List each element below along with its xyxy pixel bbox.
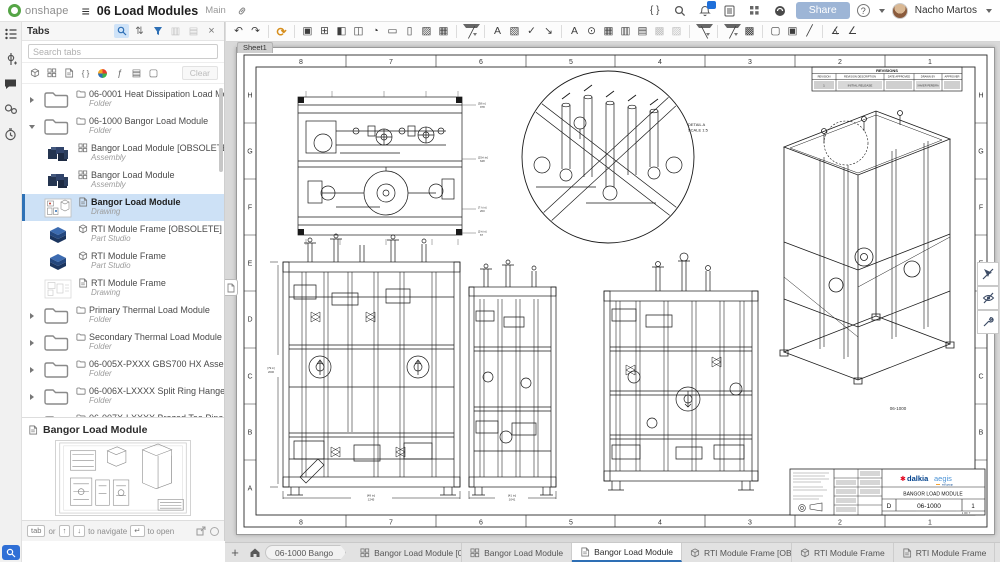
new-tab-button[interactable]: + [225, 543, 245, 562]
item-sublabel: Part Studio [91, 234, 222, 244]
svg-text:REVISIONS: REVISIONS [876, 68, 898, 73]
notifications-bell-icon[interactable] [696, 3, 714, 19]
toolbar-divider [456, 25, 457, 38]
item-label: 06-0001 Heat Dissipation Load Mod... [89, 89, 224, 99]
item-type-icon [76, 305, 86, 315]
item-label: RTI Module Frame [OBSOLETE] [91, 224, 222, 234]
item-thumbnail [41, 305, 71, 326]
item-label: Primary Thermal Load Module [89, 305, 210, 315]
item-label: Bangor Load Module [91, 197, 181, 207]
item-meta: 06-006X-LXXXX Split Ring Hanger A... Fol… [76, 386, 224, 406]
hide-all-icon[interactable] [977, 286, 999, 310]
svg-text:B: B [979, 430, 984, 437]
folder-breadcrumb[interactable]: 06-1000 Bango [265, 545, 346, 560]
item-thumbnail [41, 116, 71, 137]
item-thumbnail [43, 224, 73, 245]
tree-item[interactable]: Bangor Load Module Drawing [22, 194, 224, 221]
item-label: 06-007X-LXXXX Brazed Tee Pipe As... [89, 413, 224, 417]
item-type-icon [78, 143, 88, 153]
release-tasks-icon[interactable] [721, 3, 739, 19]
share-button[interactable]: Share [796, 2, 850, 19]
tree-item[interactable]: RTI Module Frame Drawing [22, 275, 224, 302]
item-sublabel: Folder [89, 315, 210, 325]
svg-text:APPROVER: APPROVER [945, 75, 960, 79]
svg-text:200: 200 [480, 209, 485, 213]
drawing-toolbar: ↶ ↷ ⟳ ▣ ⊞ ◧ ◫ ◔ ▭ ▯ ▨ ▦ ╱ [225, 22, 1000, 42]
svg-text:6: 6 [479, 59, 483, 66]
drawing-number: 06-1000 [917, 503, 941, 510]
item-sublabel: Drawing [91, 288, 166, 298]
sheet-count: 1 OF 7 [962, 511, 971, 515]
enter-key-hint: ↵ [130, 525, 144, 537]
svg-text:1041: 1041 [509, 498, 516, 502]
item-type-icon [76, 413, 86, 417]
item-sublabel: Assembly [91, 153, 224, 163]
edit-appearance-icon[interactable] [977, 310, 999, 334]
break-view-icon[interactable]: ▯ [401, 24, 418, 39]
user-avatar[interactable] [892, 3, 908, 19]
svg-text:G: G [978, 149, 983, 156]
hide-entity-icon[interactable] [977, 262, 999, 286]
svg-text:1245: 1245 [368, 498, 375, 502]
close-panel-icon[interactable]: × [204, 24, 219, 38]
document-title: 06 Load Modules [97, 4, 198, 18]
item-label: Bangor Load Module [91, 170, 175, 180]
home-tab-icon[interactable] [245, 543, 265, 562]
tabs-tree: 06-0001 Heat Dissipation Load Mod... Fol… [22, 84, 224, 417]
toolbar-divider [689, 25, 690, 38]
redo-icon[interactable]: ↷ [247, 24, 264, 39]
onshape-logo-icon [8, 4, 21, 17]
item-meta: Bangor Load Module Drawing [78, 197, 181, 217]
item-thumbnail [41, 386, 71, 407]
item-meta: RTI Module Frame [OBSOLETE] Part Studio [78, 224, 222, 244]
sort-icon[interactable]: ⇅ [132, 24, 147, 38]
item-type-icon [78, 197, 88, 207]
versions-icon[interactable] [3, 101, 19, 117]
svg-text:3: 3 [748, 59, 752, 66]
panel-title: Tabs [27, 26, 111, 37]
svg-text:REVISION DESCRIPTION: REVISION DESCRIPTION [844, 75, 876, 79]
item-sublabel: Folder [89, 396, 224, 406]
tree-item[interactable]: 06-0001 Heat Dissipation Load Mod... Fol… [22, 86, 224, 113]
section-view-icon[interactable]: ◫ [350, 24, 367, 39]
sheet-tab[interactable]: Sheet1 [237, 42, 273, 53]
down-key-hint: ↓ [73, 525, 85, 537]
measure-distance-icon[interactable]: ∡ [827, 24, 844, 39]
note-icon[interactable]: A [489, 24, 506, 39]
tree-item[interactable]: 06-005X-PXXX GBS700 HX Assembly Folder [22, 356, 224, 383]
callout-icon[interactable]: ↘ [540, 24, 557, 39]
undo-icon[interactable]: ↶ [230, 24, 247, 39]
tree-item[interactable]: Bangor Load Module [OBSOLETE] Assembly [22, 140, 224, 167]
item-sublabel: Folder [89, 342, 222, 352]
table-icon[interactable]: ▦ [600, 24, 617, 39]
pdf-filter-icon[interactable]: ▤ [130, 67, 143, 80]
svg-text:✱: ✱ [900, 475, 906, 483]
toolbar-divider [561, 25, 562, 38]
tree-item[interactable]: 06-007X-LXXXX Brazed Tee Pipe As... Fold… [22, 410, 224, 417]
item-type-icon [76, 332, 86, 342]
main-menu-icon[interactable]: ≡ [82, 4, 90, 18]
svg-text:648: 648 [480, 159, 485, 163]
insert-view-icon[interactable]: ▣ [299, 24, 316, 39]
item-label: RTI Module Frame [91, 278, 166, 288]
drawing-sheet[interactable]: 87 65 43 21 87 65 43 21 HG FE DC BA HG F… [236, 47, 995, 535]
svg-text:XAVIER PEREIRA: XAVIER PEREIRA [917, 84, 939, 88]
preview-title: Bangor Load Module [43, 424, 147, 436]
toolbar-divider [762, 25, 763, 38]
svg-text:67: 67 [480, 233, 484, 237]
item-label: RTI Module Frame [91, 251, 166, 261]
onshape-logo[interactable]: onshape [8, 4, 69, 17]
svg-text:7: 7 [389, 520, 393, 527]
svg-text:F: F [979, 205, 983, 212]
featurestudio-filter-icon[interactable]: { } [79, 67, 92, 80]
hole-table-icon[interactable]: ▥ [617, 24, 634, 39]
svg-text:DETAIL A: DETAIL A [688, 122, 705, 127]
clear-filters-button[interactable]: Clear [182, 66, 218, 80]
document-tab[interactable]: RTI Module Frame [894, 543, 996, 562]
or-label: or [48, 527, 55, 536]
hatch-icon[interactable]: ▩ [741, 24, 758, 39]
svg-text:dalkia: dalkia [907, 474, 929, 483]
detail-view-icon[interactable]: ▤ [186, 24, 201, 38]
history-icon[interactable] [3, 126, 19, 142]
weld-table-icon[interactable]: ▨ [668, 24, 685, 39]
toolbar-divider [484, 25, 485, 38]
svg-text:8: 8 [299, 59, 303, 66]
quick-search-icon[interactable] [2, 545, 20, 560]
drawing-icon [28, 425, 38, 435]
document-tab[interactable]: Bangor Load Module [572, 543, 682, 562]
tabs-panel-header: Tabs ⇅ ▥ ▤ × [22, 22, 224, 41]
help-caret-icon [879, 9, 885, 13]
document-tab[interactable]: RTI Module Frame [792, 543, 894, 562]
tree-scrollbar[interactable] [219, 88, 223, 172]
svg-text:aegis: aegis [934, 474, 952, 483]
svg-text:C: C [247, 374, 252, 381]
title-block[interactable]: ✱ dalkia aegis edf group BANGOR LOAD MOD… [790, 469, 985, 515]
svg-text:E: E [248, 261, 253, 268]
view-floating-buttons [977, 262, 999, 334]
svg-text:DATE APPROVED: DATE APPROVED [888, 75, 911, 79]
open-label: to open [148, 527, 175, 536]
toolbar-divider [717, 25, 718, 38]
line-icon[interactable]: ╱ [724, 24, 741, 39]
broken-out-section-icon[interactable]: ▨ [418, 24, 435, 39]
svg-text:H: H [978, 93, 983, 100]
expand-arrow-icon[interactable] [27, 97, 36, 103]
svg-text:978: 978 [480, 105, 485, 109]
svg-text:[79 in]: [79 in] [267, 366, 275, 370]
show-hidden-edges-icon[interactable]: ▦ [435, 24, 452, 39]
preview-panel: Bangor Load Module [22, 417, 224, 520]
item-sublabel: Assembly [91, 180, 175, 190]
svg-text:2: 2 [838, 520, 842, 527]
svg-text:4: 4 [658, 59, 662, 66]
filter-row: { } ƒ ▤ ▢ Clear [22, 63, 224, 84]
svg-text:2006: 2006 [268, 370, 274, 374]
app-store-grid-icon[interactable] [746, 3, 764, 19]
sheet-flip-button[interactable] [225, 279, 238, 296]
manage-sheets-icon[interactable]: ▣ [784, 24, 801, 39]
dimension-icon[interactable]: ╱ [463, 24, 480, 39]
svg-text:REVISION: REVISION [818, 75, 831, 79]
tree-item[interactable]: Primary Thermal Load Module Folder [22, 302, 224, 329]
expand-arrow-icon[interactable] [27, 340, 36, 346]
item-type-icon [78, 224, 88, 234]
item-meta: Bangor Load Module Assembly [78, 170, 175, 190]
open-in-window-icon[interactable] [196, 526, 206, 536]
item-meta: RTI Module Frame Drawing [78, 278, 166, 298]
item-thumbnail [43, 170, 73, 191]
svg-text:F: F [248, 205, 252, 212]
svg-text:6: 6 [479, 520, 483, 527]
svg-text:5: 5 [569, 520, 573, 527]
svg-text:H: H [247, 93, 252, 100]
svg-text:SCALE 1:5: SCALE 1:5 [688, 128, 709, 133]
item-meta: 06-007X-LXXXX Brazed Tee Pipe As... Fold… [76, 413, 224, 417]
comments-icon[interactable] [3, 76, 19, 92]
item-type-icon [78, 278, 88, 288]
item-thumbnail [41, 89, 71, 110]
toolbar-divider [268, 25, 269, 38]
auxiliary-view-icon[interactable]: ◧ [333, 24, 350, 39]
tab-key-hint: tab [27, 525, 45, 537]
elevation1-dimensions: [49 in] 1245 [367, 494, 375, 502]
svg-text:C: C [978, 374, 983, 381]
item-type-icon [76, 386, 86, 396]
navigate-label: to navigate [88, 527, 127, 536]
item-sublabel: Folder [89, 99, 224, 109]
measure-angle-icon[interactable]: ∠ [844, 24, 861, 39]
centerline-icon[interactable]: ╲ [696, 24, 713, 39]
preview-thumbnail[interactable] [55, 440, 191, 516]
expand-arrow-icon[interactable] [27, 394, 36, 400]
partstudio-filter-icon[interactable] [28, 67, 41, 80]
expand-arrow-icon[interactable] [27, 367, 36, 373]
notification-badge [707, 1, 716, 9]
panel-footer: tab or ↑ ↓ to navigate ↵ to open [22, 520, 224, 541]
insert-reference-icon[interactable] [3, 51, 19, 67]
item-thumbnail [43, 197, 73, 218]
revision-table-icon[interactable]: ▩ [651, 24, 668, 39]
tree-item[interactable]: RTI Module Frame Part Studio [22, 248, 224, 275]
check-icon[interactable]: ✓ [523, 24, 540, 39]
document-tab[interactable]: Bangor Load Module [0... [352, 543, 462, 562]
top-bar: onshape ≡ 06 Load Modules Main { } Share… [0, 0, 1000, 22]
drawing-filter-icon[interactable] [62, 67, 75, 80]
image-icon[interactable]: ▧ [506, 24, 523, 39]
item-meta: RTI Module Frame Part Studio [78, 251, 166, 271]
item-thumbnail [43, 278, 73, 299]
item-label: 06-005X-PXXX GBS700 HX Assembly [89, 359, 224, 369]
svg-text:7: 7 [389, 59, 393, 66]
workspace-branch[interactable]: Main [205, 5, 226, 16]
crop-view-icon[interactable]: ▭ [384, 24, 401, 39]
document-tab[interactable]: RTI Module Frame [OB... [682, 543, 792, 562]
detail-view-icon[interactable]: ◔ [367, 24, 384, 39]
item-type-icon [78, 251, 88, 261]
expand-arrow-icon[interactable] [27, 125, 36, 129]
document-tab[interactable]: Bangor Load Module [462, 543, 572, 562]
item-thumbnail [41, 332, 71, 353]
item-sublabel: Folder [89, 126, 208, 136]
item-sublabel: Drawing [91, 207, 181, 217]
left-icon-strip [0, 22, 22, 562]
item-meta: Primary Thermal Load Module Folder [76, 305, 210, 325]
item-label: 06-006X-LXXXX Split Ring Hanger A... [89, 386, 224, 396]
item-type-icon [76, 359, 86, 369]
learning-center-icon[interactable] [771, 3, 789, 19]
elevation2-dimensions: [41 in] 1041 [508, 494, 516, 502]
projected-view-icon[interactable]: ⊞ [316, 24, 333, 39]
tabs-panel-icon[interactable] [3, 26, 19, 42]
drawing-canvas[interactable]: Sheet1 87 [225, 42, 1000, 542]
search-toggle-icon[interactable] [114, 24, 129, 38]
svg-text:A: A [248, 486, 253, 493]
featurescript-icon[interactable]: { } [646, 3, 664, 19]
svg-text:3: 3 [748, 520, 752, 527]
item-thumbnail [43, 251, 73, 272]
item-meta: 06-005X-PXXX GBS700 HX Assembly Folder [76, 359, 224, 379]
svg-text:8: 8 [299, 520, 303, 527]
item-meta: 06-1000 Bangor Load Module Folder [76, 116, 208, 136]
item-label: 06-1000 Bangor Load Module [89, 116, 208, 126]
new-sheet-icon[interactable]: ▢ [767, 24, 784, 39]
info-icon[interactable] [210, 527, 219, 536]
svg-text:edf group: edf group [942, 483, 954, 487]
item-meta: Secondary Thermal Load Module Folder [76, 332, 222, 352]
svg-text:D: D [247, 317, 252, 324]
search-row [22, 41, 224, 63]
svg-text:4: 4 [658, 520, 662, 527]
document-tab-bar: + 06-1000 Bango Bangor Load Module [0...… [225, 542, 1000, 562]
svg-text:1: 1 [928, 59, 932, 66]
tree-item[interactable]: 06-006X-LXXXX Split Ring Hanger A... Fol… [22, 383, 224, 410]
variable-studio-filter-icon[interactable]: ƒ [113, 67, 126, 80]
list-view-icon[interactable]: ▥ [168, 24, 183, 38]
svg-text:B: B [248, 430, 253, 437]
app-filter-icon[interactable] [96, 67, 109, 80]
drawing-title: BANGOR LOAD MODULE [903, 492, 963, 498]
toolbar-divider [294, 25, 295, 38]
assembly-filter-icon[interactable] [45, 67, 58, 80]
expand-arrow-icon[interactable] [27, 313, 36, 319]
item-sublabel: Folder [89, 369, 224, 379]
svg-text:2: 2 [838, 59, 842, 66]
tree-item[interactable]: 06-1000 Bangor Load Module Folder [22, 113, 224, 140]
help-icon[interactable]: ? [857, 4, 870, 17]
svg-text:INITIAL RELEASE: INITIAL RELEASE [848, 84, 873, 88]
toolbar-divider [822, 25, 823, 38]
user-menu-caret-icon[interactable] [986, 9, 992, 13]
svg-text:DRAWN BY: DRAWN BY [921, 75, 936, 79]
bom-table-icon[interactable]: ▤ [634, 24, 651, 39]
tree-item[interactable]: Secondary Thermal Load Module Folder [22, 329, 224, 356]
item-label: Bangor Load Module [OBSOLETE] [91, 143, 224, 153]
tree-item[interactable]: RTI Module Frame [OBSOLETE] Part Studio [22, 221, 224, 248]
tree-item[interactable]: Bangor Load Module Assembly [22, 167, 224, 194]
item-thumbnail [41, 413, 71, 417]
up-key-hint: ↑ [59, 525, 71, 537]
onshape-app: onshape ≡ 06 Load Modules Main { } Share… [0, 0, 1000, 562]
svg-text:G: G [247, 149, 252, 156]
edit-border-icon[interactable]: ╱ [801, 24, 818, 39]
text-icon[interactable]: A [566, 24, 583, 39]
item-meta: Bangor Load Module [OBSOLETE] Assembly [78, 143, 224, 163]
sheet-size: D [887, 503, 892, 510]
item-type-icon [78, 170, 88, 180]
share-link-icon[interactable] [233, 3, 251, 19]
tabs-panel: Tabs ⇅ ▥ ▤ × { } ƒ ▤ ▢ Clear [22, 22, 225, 541]
search-icon[interactable] [671, 3, 689, 19]
item-meta: 06-0001 Heat Dissipation Load Mod... Fol… [76, 89, 224, 109]
item-label: Secondary Thermal Load Module [89, 332, 222, 342]
item-type-icon [76, 89, 86, 99]
svg-text:06-1000: 06-1000 [890, 406, 907, 411]
update-references-icon[interactable]: ⟳ [273, 24, 290, 39]
search-tabs-input[interactable] [28, 44, 218, 59]
filter-icon[interactable] [150, 24, 165, 38]
svg-text:1: 1 [928, 520, 932, 527]
svg-text:5: 5 [569, 59, 573, 66]
onshape-logo-text: onshape [25, 5, 69, 17]
item-type-icon [76, 116, 86, 126]
zoom-annotation-icon[interactable]: ⊙ [583, 24, 600, 39]
user-name: Nacho Martos [915, 5, 977, 16]
blob-filter-icon[interactable]: ▢ [147, 67, 160, 80]
item-thumbnail [41, 359, 71, 380]
item-thumbnail [43, 143, 73, 164]
item-sublabel: Part Studio [91, 261, 166, 271]
